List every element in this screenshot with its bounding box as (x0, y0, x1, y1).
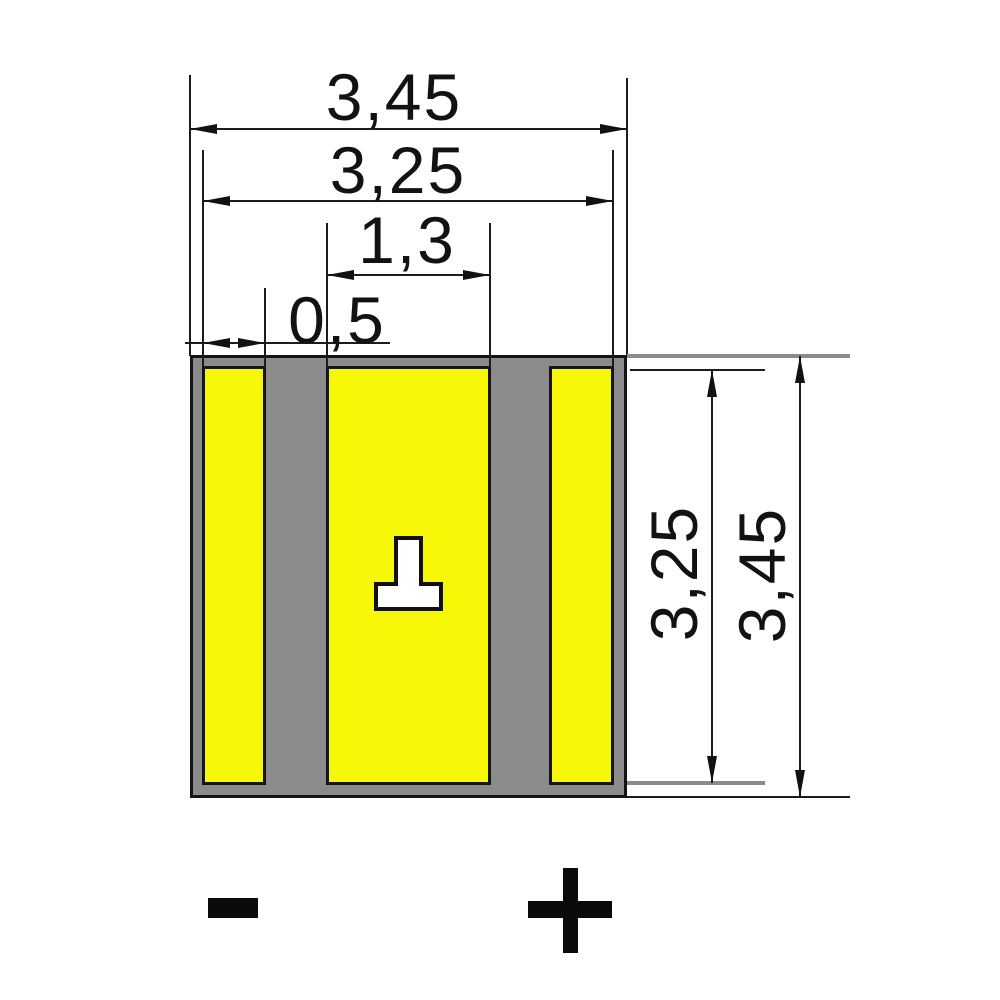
extension-line (626, 78, 628, 356)
minus-icon (208, 898, 258, 918)
pad-right-anode (549, 366, 614, 785)
extension-line (189, 75, 191, 356)
polarity-t-mark-icon (370, 532, 448, 616)
arrowhead-icon (203, 196, 230, 206)
extension-line (612, 150, 614, 368)
arrowhead-icon (238, 338, 265, 348)
extension-line (489, 223, 491, 368)
arrowhead-icon (586, 196, 613, 206)
dim-label-overall-height: 3,45 (729, 507, 795, 643)
technical-drawing: 3,45 3,25 1,3 0,5 3,25 (0, 0, 1000, 1000)
arrowhead-icon (327, 270, 354, 280)
extension-line (202, 150, 204, 368)
dim-label-center-pad-width: 1,3 (358, 207, 456, 273)
dim-label-side-pad-width: 0,5 (288, 287, 386, 353)
dim-label-pad-height: 3,25 (641, 505, 707, 641)
dimension-line (711, 370, 713, 783)
arrowhead-icon (203, 338, 230, 348)
extension-line (627, 781, 765, 785)
arrowhead-icon (707, 370, 717, 397)
extension-line (627, 796, 850, 798)
arrowhead-icon (463, 270, 490, 280)
pad-left-cathode (202, 366, 266, 785)
arrowhead-icon (190, 124, 217, 134)
arrowhead-icon (795, 356, 805, 383)
dim-label-overall-width: 3,45 (326, 64, 462, 130)
arrowhead-icon (600, 124, 627, 134)
arrowhead-icon (707, 756, 717, 783)
dimension-line (799, 356, 801, 797)
extension-line (627, 354, 850, 358)
plus-icon-vbar (563, 868, 578, 953)
arrowhead-icon (795, 770, 805, 797)
dim-label-pad-span-width: 3,25 (330, 137, 466, 203)
extension-line (264, 288, 266, 368)
extension-line (630, 369, 765, 371)
polarity-t-mark-shape (376, 538, 441, 609)
